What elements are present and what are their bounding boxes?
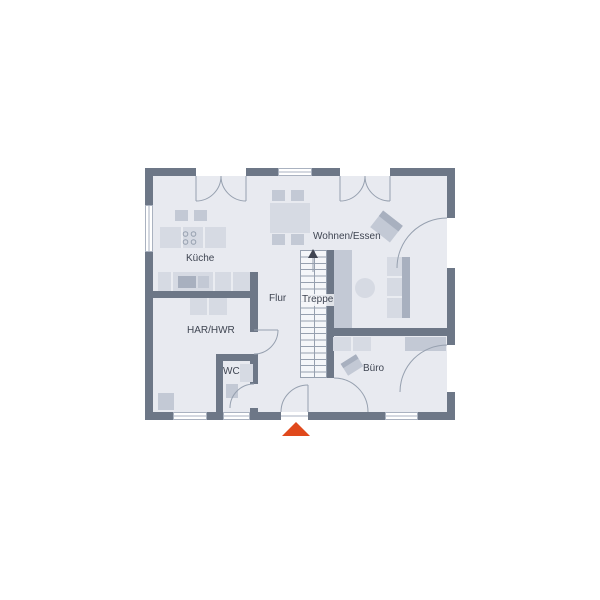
dining-chair (272, 190, 285, 201)
room-label-buero: Büro (363, 363, 384, 375)
kitchen-appliance (198, 276, 209, 288)
wc-basin (240, 364, 253, 382)
outer-wall-bottom-4 (308, 412, 385, 420)
room-label-wohnen-essen: Wohnen/Essen (313, 231, 381, 243)
terrace-door-wohnen-opening (447, 218, 455, 268)
har-cabinet (158, 393, 174, 410)
wc-toilet (226, 384, 238, 398)
floor-plan: Küche Wohnen/Essen Flur Treppe HAR/HWR W… (0, 0, 600, 600)
dining-chair (291, 190, 304, 201)
desk (333, 337, 371, 351)
outer-wall-bottom-3 (250, 412, 281, 420)
window-wc-bottom (223, 412, 250, 420)
dining-table (270, 203, 310, 233)
outer-wall-right-2 (447, 268, 455, 345)
outer-wall-bottom-1 (145, 412, 173, 420)
room-label-treppe: Treppe (301, 294, 334, 306)
outer-wall-bottom-2 (207, 412, 223, 420)
front-door-opening (281, 412, 308, 420)
wall-wc-right-stub (250, 408, 258, 412)
entrance-marker (282, 422, 310, 436)
sideboard (334, 250, 352, 328)
terrace-door-buero-opening (447, 345, 455, 392)
washer-dryer (190, 298, 227, 315)
room-label-har-hwr: HAR/HWR (187, 325, 235, 337)
dining-chair (272, 234, 285, 245)
window-har-bottom (173, 412, 207, 420)
room-label-wc: WC (223, 366, 240, 378)
sofa (387, 257, 410, 318)
sofa-backrest (402, 257, 410, 318)
desk-sideboard (405, 337, 446, 351)
window-top-center (278, 168, 312, 176)
outer-wall-top-3 (312, 168, 340, 176)
window-kueche-left (145, 205, 153, 252)
french-door-wohnen-opening (340, 168, 390, 176)
outer-wall-left-1 (145, 168, 153, 205)
stairs (300, 250, 327, 378)
stairs-walkline (314, 251, 315, 377)
wall-buero-north (327, 328, 447, 336)
wall-wc-left (216, 354, 223, 412)
outer-wall-top-4 (390, 168, 455, 176)
round-rug (355, 278, 375, 298)
dining-chair (291, 234, 304, 245)
kitchen-sink (178, 276, 196, 288)
french-door-kueche-opening (196, 168, 246, 176)
outer-wall-left-2 (145, 252, 153, 420)
outer-wall-right-1 (447, 168, 455, 218)
room-label-kueche: Küche (186, 253, 214, 265)
outer-wall-bottom-5 (418, 412, 455, 420)
wall-har-flur (250, 272, 258, 332)
stool (194, 210, 207, 221)
room-label-flur: Flur (269, 293, 286, 305)
window-buero-bottom (385, 412, 418, 420)
kitchen-island (160, 227, 226, 248)
outer-wall-top-2 (246, 168, 278, 176)
wall-kueche-har (153, 291, 250, 298)
wall-treppe (327, 250, 334, 378)
stool (175, 210, 188, 221)
